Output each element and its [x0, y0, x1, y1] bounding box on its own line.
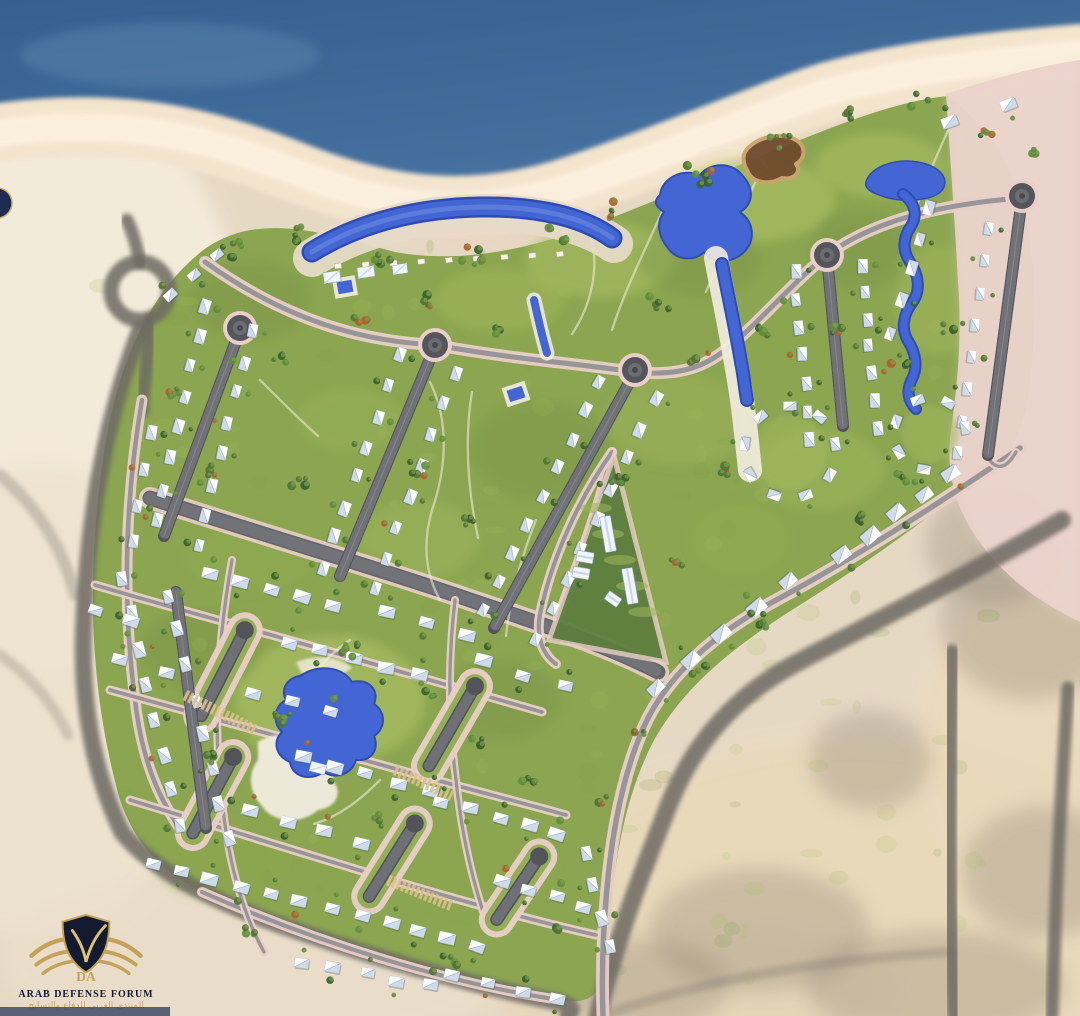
- watermark-bottom-bar: [0, 1007, 170, 1016]
- villa: [790, 264, 802, 280]
- villa: [868, 393, 880, 409]
- villa: [294, 958, 310, 971]
- villa: [961, 382, 973, 397]
- villa: [864, 365, 877, 382]
- villa: [951, 446, 962, 461]
- villa: [965, 350, 976, 364]
- villa: [859, 286, 870, 300]
- beach-club: [744, 136, 804, 182]
- masterplan-rendering: DA ARAB DEFENSE FORUM المنتدى العربي للد…: [0, 0, 1080, 1016]
- villa: [127, 534, 139, 550]
- villa: [974, 287, 985, 301]
- villa: [114, 571, 127, 588]
- villa: [802, 432, 814, 448]
- villa: [871, 421, 884, 437]
- villa: [979, 254, 990, 268]
- villa: [862, 338, 873, 353]
- villa: [982, 221, 994, 236]
- villa: [802, 406, 812, 420]
- masterplan-svg: [0, 0, 1080, 1016]
- villa: [792, 320, 805, 336]
- villa: [796, 347, 807, 362]
- villa: [862, 313, 873, 328]
- villa: [968, 318, 979, 333]
- villa: [800, 376, 812, 392]
- villa: [515, 986, 532, 999]
- villa: [857, 259, 868, 274]
- villa: [377, 661, 396, 676]
- villa: [789, 293, 801, 308]
